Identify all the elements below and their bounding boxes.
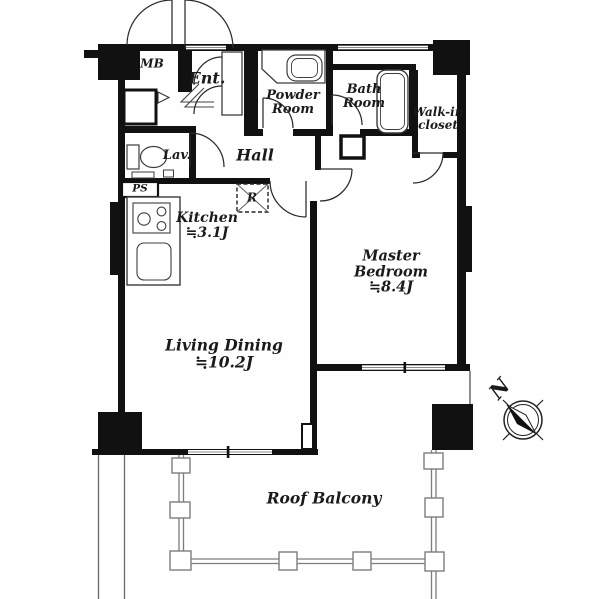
label-refrigerator-space: R: [247, 192, 257, 205]
pillar-bottom-left: [98, 412, 142, 453]
label-kitchen: Kitchen ≒3.1J: [176, 211, 238, 241]
living-window-mullion: [227, 446, 230, 458]
label-entrance: Ent.: [189, 69, 226, 86]
bath-niche-box: [341, 136, 364, 158]
label-bath-room: Bath Room: [343, 83, 385, 111]
wall-bath-top-inner: [326, 64, 416, 70]
wall-hall-kitchen: [196, 178, 270, 184]
railing-posts: [170, 453, 444, 571]
entrance-door: [185, 0, 233, 48]
label-pipe-space: PS: [132, 183, 147, 194]
mb-door: [127, 0, 172, 45]
label-master-bedroom: Master Bedroom ≒8.4J: [354, 249, 428, 296]
kitchen-counter-icon: [127, 197, 180, 285]
step-arrow: [158, 92, 169, 103]
washbasin-icon: [262, 50, 325, 83]
bedroom-door: [320, 169, 352, 201]
floorplan: MB Ent. Powder Room Bath Room Walk-in cl…: [0, 0, 603, 599]
corner-panel: [302, 424, 313, 449]
wall-tab-left: [84, 50, 98, 58]
label-lavatory: Lav.: [163, 149, 191, 163]
label-hall: Hall: [236, 146, 274, 163]
pillar-bottom-right: [432, 404, 473, 450]
compass: [503, 400, 543, 440]
wall-wic-bottom: [443, 152, 466, 158]
wall-bedroom-stub: [315, 136, 321, 170]
balcony-railing: [99, 371, 471, 599]
wall-right-band: [457, 206, 472, 272]
wall-living-bedroom-divider: [310, 201, 317, 455]
label-powder-room: Powder Room: [266, 89, 320, 117]
living-hall-door: [270, 181, 306, 217]
wall-ent-powder: [244, 44, 258, 132]
sink-icon: [137, 243, 171, 280]
label-roof-balcony: Roof Balcony: [267, 491, 382, 508]
wall-lav-top: [118, 126, 196, 133]
label-walk-in-closet: Walk-in closet: [413, 106, 464, 132]
wall-hall-top-1: [244, 129, 263, 136]
bedroom-window-mullion: [404, 362, 407, 373]
label-mb: MB: [140, 58, 163, 71]
wall-left-window-band: [110, 202, 118, 275]
label-living-dining: Living Dining ≒10.2J: [165, 337, 283, 370]
mb-shaft-box: [124, 90, 156, 124]
wall-hall-top-2: [293, 129, 332, 136]
